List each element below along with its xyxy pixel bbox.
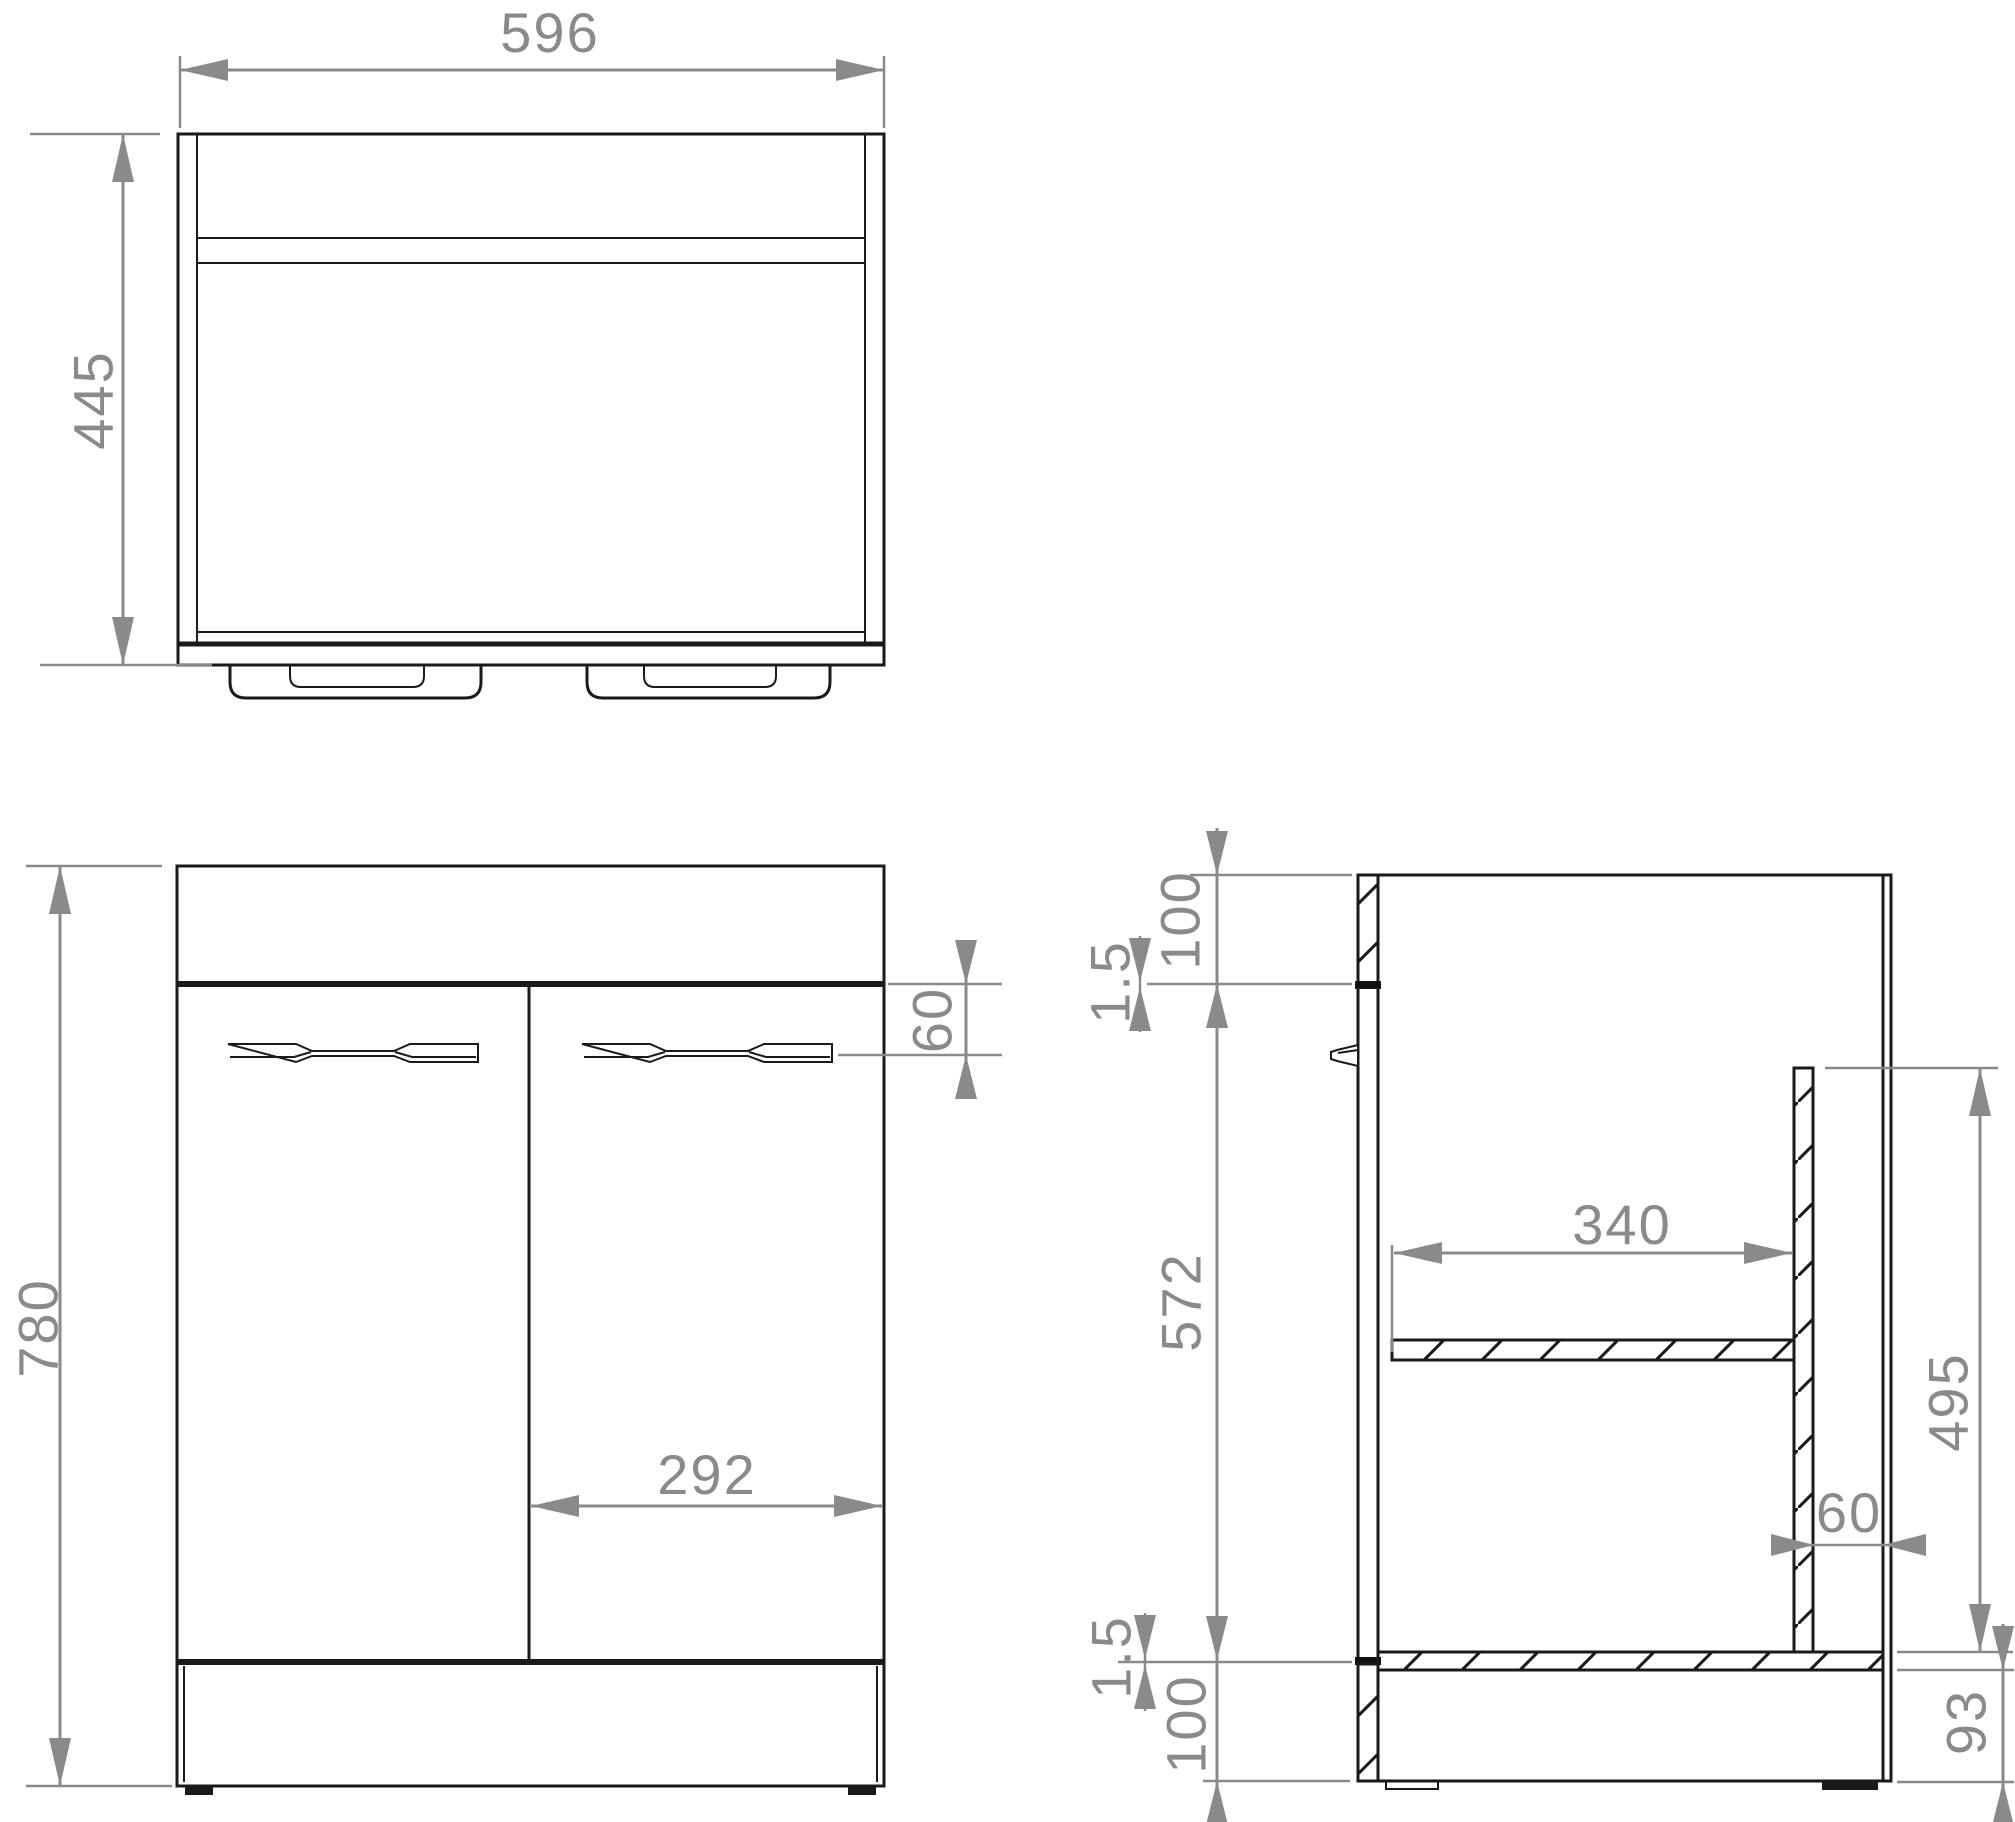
- dim-plan-width: 596: [180, 1, 884, 128]
- plan-back-rail-lines: [197, 238, 865, 263]
- dim-plan-depth: 445: [30, 134, 212, 665]
- plan-front-strip: [178, 645, 884, 665]
- side-foot-back: [1823, 1781, 1877, 1789]
- side-view: 100 1.5 572 1.5 100 340 495 60: [1079, 828, 2014, 1822]
- arrowhead: [1206, 1616, 1228, 1660]
- arrowhead-left: [1394, 1242, 1442, 1264]
- dim-label-side-partition-height: 495: [1917, 1352, 1980, 1451]
- gap-dimension-line: [1140, 936, 1145, 1711]
- arrowhead-top: [955, 940, 977, 984]
- extension-line: [180, 56, 884, 128]
- dim-label-front-door-width: 292: [657, 1443, 756, 1506]
- arrowhead-right: [1883, 1534, 1926, 1556]
- dim-label-side-shelf-depth: 340: [1572, 1193, 1671, 1256]
- arrowhead-bottom: [49, 1738, 71, 1786]
- side-handle-profile: [1331, 1045, 1358, 1066]
- arrowhead-bottom: [1969, 1604, 1991, 1652]
- dim-label-front-height: 780: [7, 1278, 70, 1377]
- handle-outline: [1331, 1045, 1358, 1066]
- dim-label-side-back-gap: 60: [1816, 1481, 1882, 1544]
- arrowhead-bottom: [1992, 1782, 2014, 1822]
- dim-side-shelf-depth: 340: [1392, 1193, 1792, 1352]
- side-shelf-section: [1392, 1340, 1794, 1360]
- side-plinth-section: [1358, 1664, 1378, 1781]
- dim-label-plan-depth: 445: [62, 350, 125, 449]
- front-foot-right: [849, 1786, 875, 1794]
- handle-outline: [228, 1044, 478, 1062]
- arrowhead-bottom: [955, 1055, 977, 1099]
- front-view: 780 292 60: [7, 866, 1002, 1794]
- dim-front-handle-offset: 60: [838, 940, 1002, 1099]
- dim-label-plan-width: 596: [500, 1, 599, 64]
- front-handle-right: [582, 1044, 832, 1062]
- dim-label-side-top-band: 100: [1149, 870, 1212, 969]
- dim-label-side-bottom-gap: 1.5: [1080, 1615, 1143, 1699]
- arrowhead-right: [836, 59, 884, 81]
- arrowhead-left: [180, 59, 228, 81]
- arrowhead-top: [112, 134, 134, 182]
- arrowhead-right: [834, 1495, 882, 1517]
- dim-side-left-column: 100 1.5 572 1.5 100: [1079, 828, 1352, 1822]
- dim-label-side-door-height: 572: [1150, 1252, 1213, 1351]
- plan-view: 596 445: [30, 1, 884, 698]
- plan-cabinet-outline: [178, 134, 884, 643]
- arrowhead: [1206, 1781, 1228, 1822]
- dim-label-front-handle-offset: 60: [901, 987, 964, 1053]
- plan-side-wall-lines: [197, 134, 865, 643]
- dim-label-side-top-gap: 1.5: [1079, 940, 1142, 1024]
- dim-front-door-width: 292: [531, 1443, 882, 1517]
- front-handle-left: [228, 1044, 478, 1062]
- arrowhead: [1206, 984, 1228, 1028]
- dim-front-height: 780: [7, 866, 172, 1786]
- side-door-section-lines: [1358, 989, 1378, 1658]
- front-plinth-inner-lines: [184, 1666, 877, 1782]
- front-foot-left: [186, 1786, 212, 1794]
- side-back-panel-lines: [1883, 875, 1891, 1781]
- arrowhead-left: [531, 1495, 579, 1517]
- plan-handle-right-inner: [644, 665, 776, 687]
- drawing-sheet: 596 445: [0, 0, 2015, 1822]
- arrowhead: [1206, 831, 1228, 875]
- handle-outline: [582, 1044, 832, 1062]
- technical-drawing: 596 445: [0, 0, 2015, 1822]
- plan-handle-right-outer: [587, 665, 830, 698]
- side-bottom-panel-section: [1378, 1652, 1883, 1670]
- arrowhead-top: [1992, 1626, 2014, 1670]
- dim-side-partition-height: 495: [1825, 1068, 2013, 1652]
- dim-side-plinth-recess: 93: [1897, 1624, 2014, 1822]
- arrowhead-top: [1969, 1068, 1991, 1116]
- dim-label-side-plinth-recess: 93: [1935, 1689, 1998, 1755]
- plan-handle-left-outer: [230, 665, 481, 698]
- arrowhead-bottom: [112, 617, 134, 665]
- side-top-band-section: [1358, 875, 1378, 983]
- dim-label-side-plinth: 100: [1155, 1674, 1218, 1773]
- side-rear-partition-section: [1794, 1068, 1813, 1652]
- arrowhead-top: [49, 866, 71, 914]
- arrowhead-right: [1744, 1242, 1792, 1264]
- plan-handle-left-inner: [290, 665, 424, 687]
